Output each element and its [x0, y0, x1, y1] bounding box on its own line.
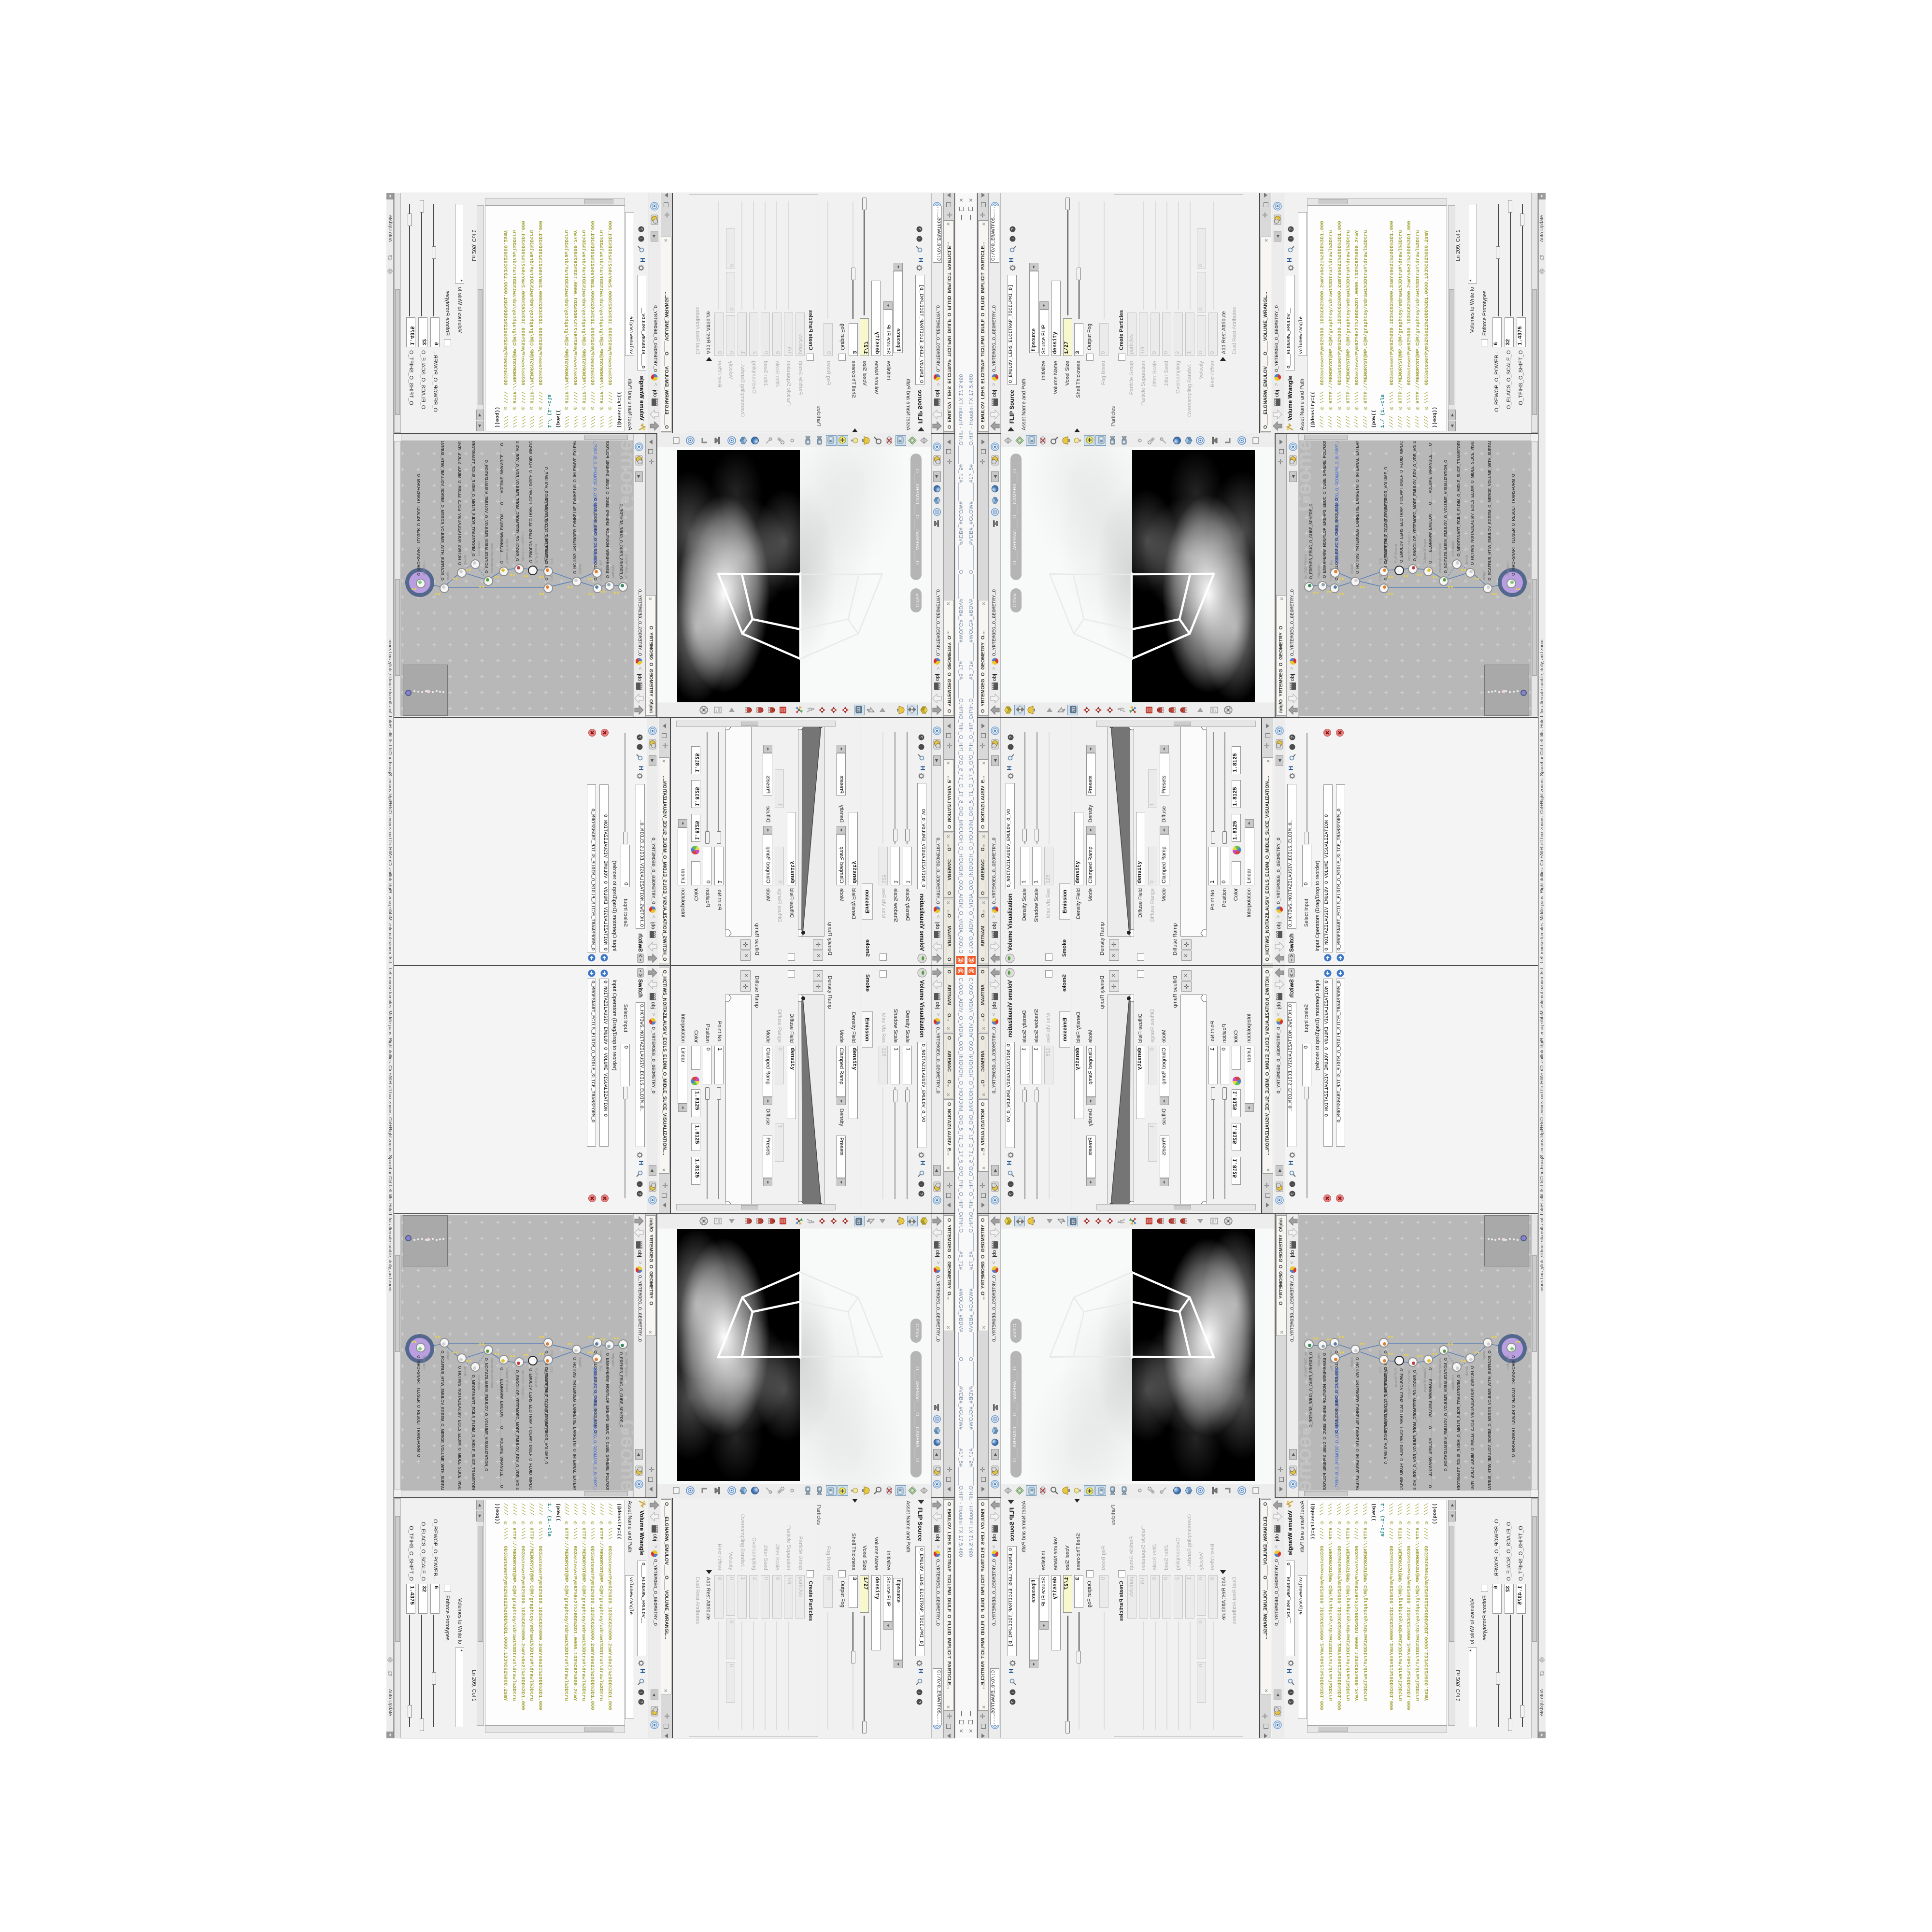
svg-text:7D: 7D: [1071, 707, 1076, 712]
svg-text:?: ?: [637, 1193, 642, 1195]
svg-text:?: ?: [1289, 1701, 1293, 1703]
svg-text:i: i: [1290, 747, 1295, 748]
svg-text:?: ?: [1010, 228, 1015, 230]
svg-text:?: ?: [639, 228, 643, 230]
svg-text:?: ?: [919, 736, 923, 739]
svg-text:i: i: [917, 1692, 922, 1693]
svg-text:i: i: [917, 239, 922, 240]
svg-text:i: i: [1010, 1692, 1015, 1693]
svg-text:i: i: [1010, 239, 1015, 240]
svg-text:?: ?: [1009, 1193, 1013, 1195]
svg-text:7D: 7D: [856, 707, 861, 712]
svg-text:i: i: [639, 239, 643, 240]
svg-text:i: i: [1289, 1692, 1293, 1693]
svg-text:?: ?: [917, 1701, 922, 1703]
svg-text:i: i: [1289, 239, 1293, 240]
svg-text:?: ?: [1009, 736, 1013, 739]
svg-text:?: ?: [1290, 736, 1295, 739]
svg-text:i: i: [1009, 1184, 1013, 1185]
svg-text:?: ?: [917, 228, 922, 230]
svg-text:i: i: [919, 747, 923, 748]
svg-text:7D: 7D: [856, 1219, 861, 1224]
svg-text:i: i: [639, 1692, 643, 1693]
svg-text:?: ?: [637, 736, 642, 739]
svg-text:?: ?: [1289, 228, 1293, 230]
svg-text:i: i: [637, 1184, 642, 1185]
svg-text:i: i: [1290, 1184, 1295, 1185]
svg-text:?: ?: [919, 1193, 923, 1195]
svg-text:?: ?: [1010, 1701, 1015, 1703]
svg-text:i: i: [1009, 747, 1013, 748]
svg-text:?: ?: [639, 1701, 643, 1703]
svg-text:i: i: [637, 747, 642, 748]
svg-text:i: i: [919, 1184, 923, 1185]
svg-text:7D: 7D: [1071, 1219, 1076, 1224]
svg-text:?: ?: [1290, 1193, 1295, 1195]
